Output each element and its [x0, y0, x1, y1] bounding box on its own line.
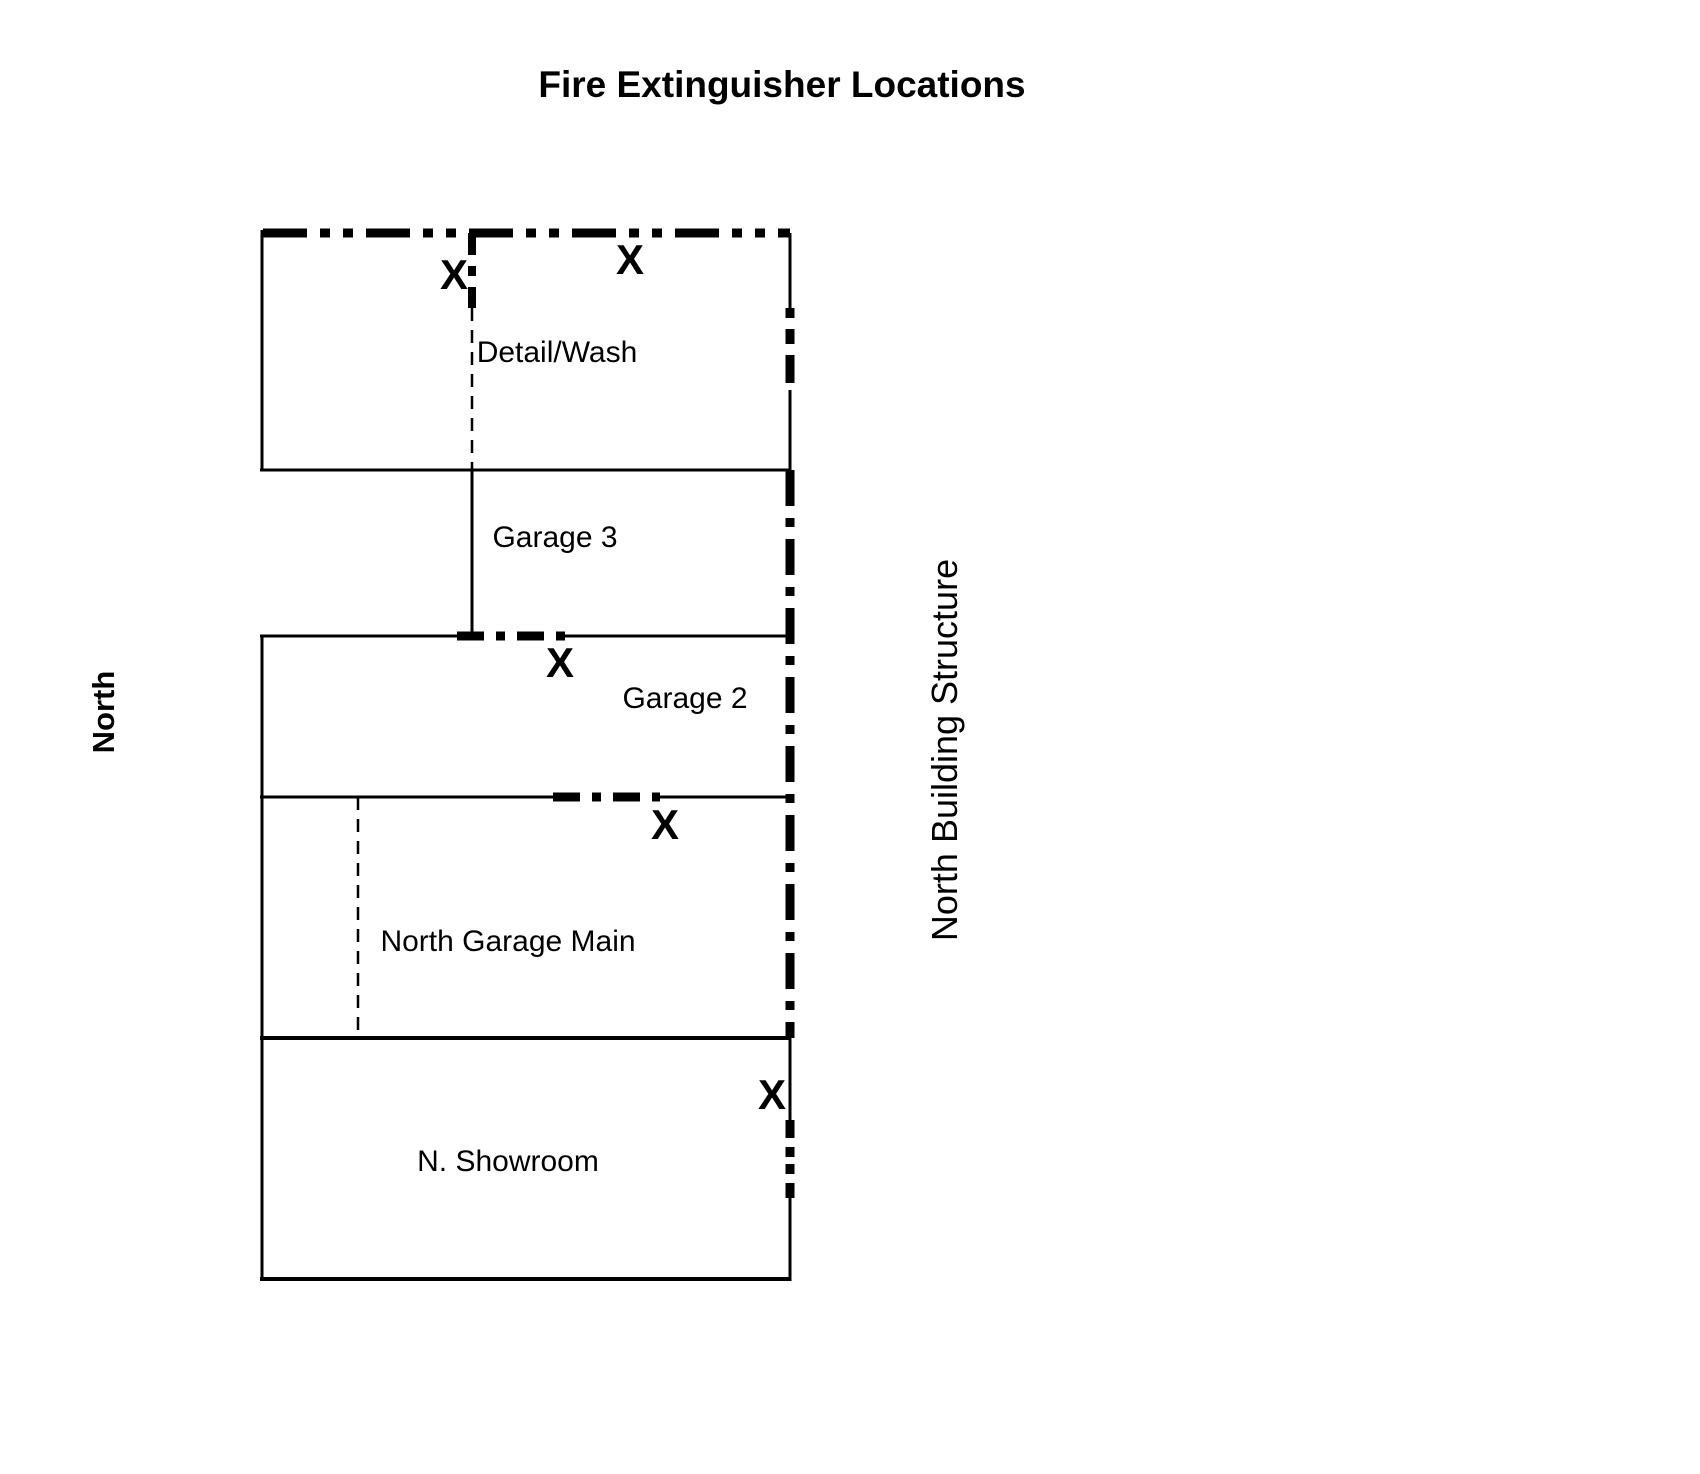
room-label-detail-wash: Detail/Wash	[477, 336, 638, 369]
room-label-garage-3: Garage 3	[492, 521, 617, 554]
north-building-floor-plan	[260, 230, 790, 1281]
north-building-structure-label: North Building Structure	[924, 559, 965, 941]
compass-north-label: North	[86, 671, 121, 754]
room-label-garage-2: Garage 2	[622, 682, 747, 715]
extinguisher-x-marker-detail-wash: X	[616, 236, 644, 283]
room-label-n-showroom: N. Showroom	[417, 1145, 599, 1178]
room-label-north-garage-main: North Garage Main	[380, 925, 635, 958]
extinguisher-x-marker-garage-2: X	[546, 639, 574, 686]
extinguisher-x-marker-detail-wash-partition: X	[440, 251, 468, 298]
extinguisher-x-marker-n-showroom: X	[758, 1071, 786, 1118]
room-labels: Detail/Wash Garage 3 Garage 2 North Gara…	[380, 336, 747, 1178]
floor-plan-svg: Fire Extinguisher Locations	[0, 0, 1700, 1474]
extinguisher-x-marker-north-garage-main: X	[651, 801, 679, 848]
fire-extinguisher-map-page: Fire Extinguisher Locations	[0, 0, 1700, 1474]
page-title: Fire Extinguisher Locations	[538, 64, 1025, 105]
